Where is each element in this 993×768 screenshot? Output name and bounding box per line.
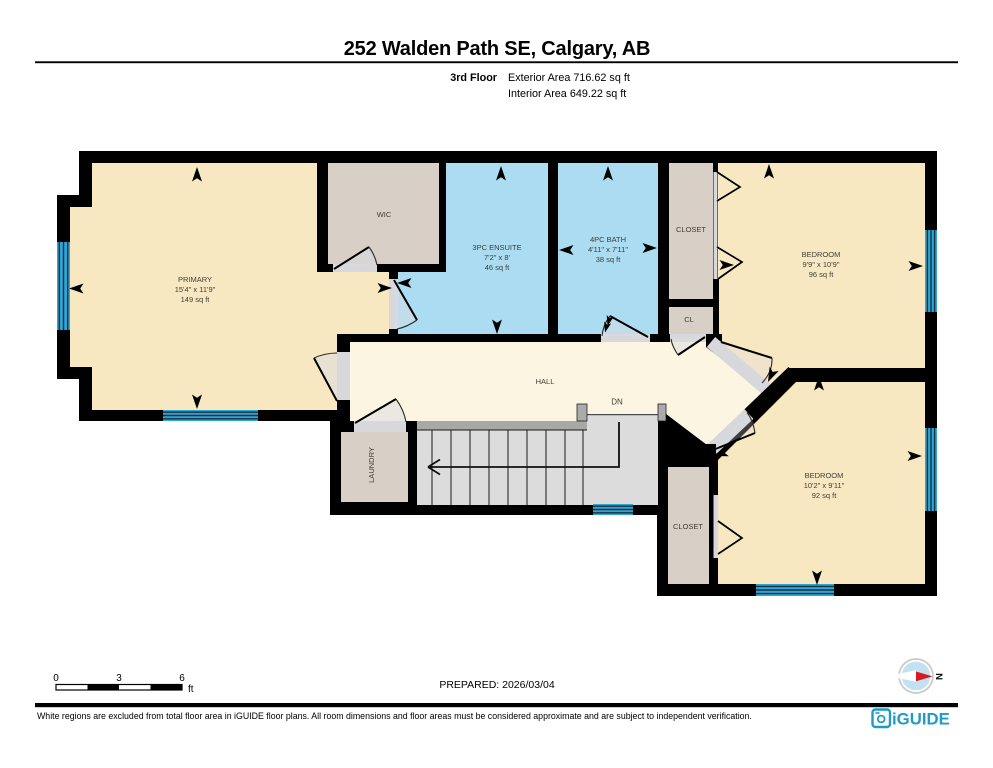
svg-text:46 sq ft: 46 sq ft [485, 263, 511, 272]
svg-text:10'2" x 9'11": 10'2" x 9'11" [804, 481, 845, 490]
svg-text:HALL: HALL [536, 377, 555, 386]
svg-text:252 Walden Path SE, Calgary, A: 252 Walden Path SE, Calgary, AB [344, 38, 651, 60]
svg-text:3PC ENSUITE: 3PC ENSUITE [472, 243, 521, 252]
svg-text:ft: ft [188, 684, 194, 695]
svg-text:LAUNDRY: LAUNDRY [367, 447, 376, 483]
svg-text:PREPARED: 2026/03/04: PREPARED: 2026/03/04 [439, 679, 555, 691]
svg-text:0: 0 [53, 673, 59, 684]
svg-text:iGUIDE: iGUIDE [892, 710, 950, 729]
svg-text:3rd Floor: 3rd Floor [450, 72, 498, 84]
svg-text:4'11" x 7'11": 4'11" x 7'11" [588, 245, 628, 254]
svg-text:BEDROOM: BEDROOM [805, 471, 844, 480]
svg-text:4PC BATH: 4PC BATH [590, 235, 626, 244]
svg-text:6: 6 [179, 673, 185, 684]
svg-text:WIC: WIC [377, 210, 392, 219]
svg-text:149 sq ft: 149 sq ft [181, 295, 211, 304]
svg-text:CL: CL [684, 315, 694, 324]
svg-text:3: 3 [116, 673, 122, 684]
svg-text:Interior Area 649.22 sq ft: Interior Area 649.22 sq ft [508, 88, 626, 100]
svg-text:PRIMARY: PRIMARY [178, 275, 212, 284]
svg-text:38 sq ft: 38 sq ft [596, 255, 622, 264]
svg-text:DN: DN [611, 398, 623, 407]
svg-text:15'4" x 11'9": 15'4" x 11'9" [175, 285, 216, 294]
svg-text:White regions are excluded fro: White regions are excluded from total fl… [37, 711, 752, 721]
svg-text:N: N [933, 673, 944, 680]
svg-text:CLOSET: CLOSET [676, 225, 706, 234]
svg-text:96 sq ft: 96 sq ft [809, 270, 835, 279]
svg-text:92 sq ft: 92 sq ft [812, 491, 838, 500]
svg-text:Exterior Area 716.62 sq ft: Exterior Area 716.62 sq ft [508, 72, 630, 84]
svg-text:BEDROOM: BEDROOM [802, 250, 841, 259]
svg-text:7'2" x 8': 7'2" x 8' [484, 253, 511, 262]
svg-text:9'9" x 10'9": 9'9" x 10'9" [803, 260, 840, 269]
svg-text:CLOSET: CLOSET [673, 522, 703, 531]
